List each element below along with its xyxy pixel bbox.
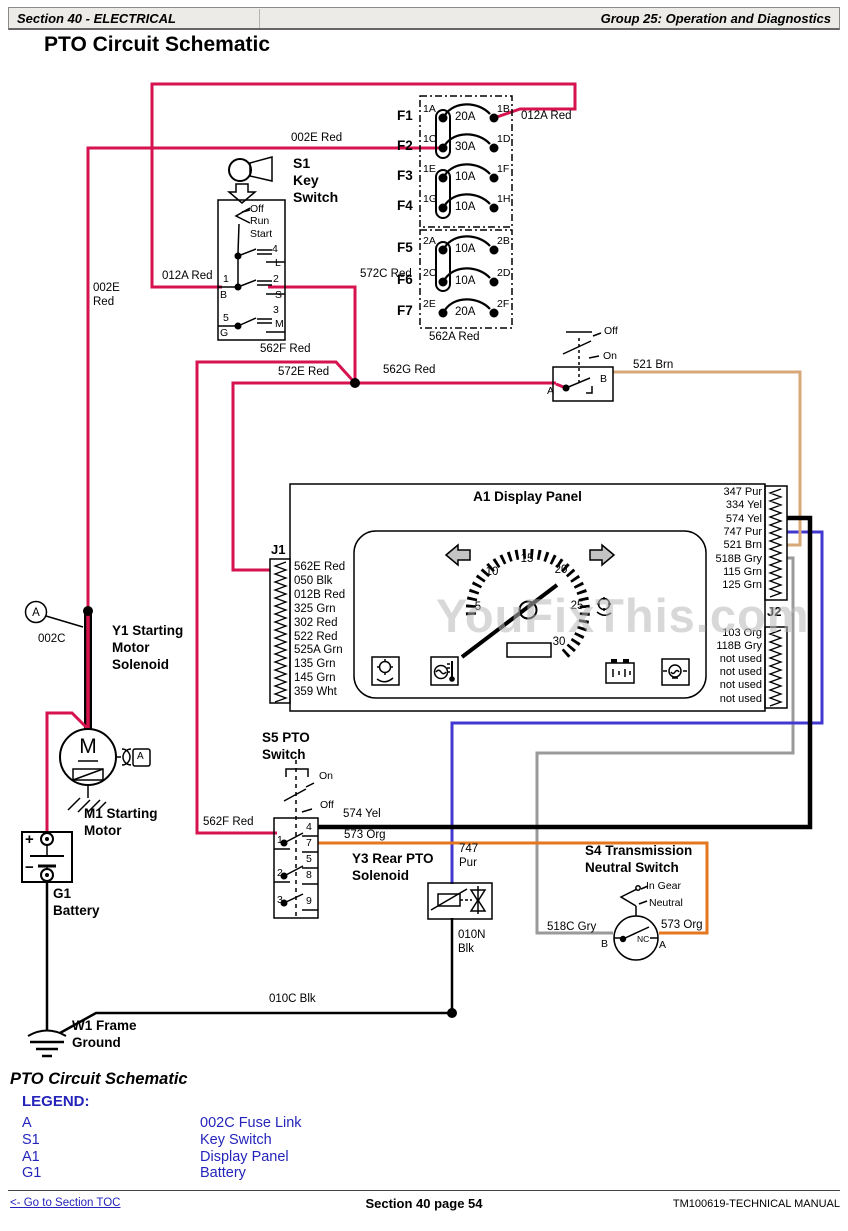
footer-rule: [8, 1190, 840, 1191]
fuse-name: F3: [397, 169, 413, 184]
fuse-name: F2: [397, 139, 413, 154]
j2-pin-label: not used: [682, 693, 762, 705]
legend-key: G1: [22, 1165, 41, 1181]
pin-label: A: [659, 940, 666, 952]
panel-right-pin-label: 747 Pur: [682, 526, 762, 538]
fuse-rating: 20A: [455, 111, 475, 124]
wire-label: 002E: [93, 282, 120, 295]
pin-label: L: [275, 258, 281, 270]
connector-zigzag: [275, 562, 286, 702]
key-position: Off: [250, 204, 264, 216]
pin-label: A: [547, 386, 554, 398]
pin-label: S: [275, 290, 282, 302]
fuse-in-terminal: 1G: [423, 194, 437, 206]
j1-pin-label: 135 Grn: [294, 658, 336, 671]
legend-value: Battery: [200, 1165, 246, 1181]
component-name: Motor: [112, 641, 150, 656]
fuse-in-terminal: 1E: [423, 164, 436, 176]
frame-ground-symbol: [28, 1031, 66, 1057]
component-name: Y3 Rear PTO: [352, 852, 434, 867]
pin-label: 1: [223, 274, 229, 286]
fuse-rating: 20A: [455, 306, 475, 319]
j2-pin-label: not used: [682, 666, 762, 678]
j1-pin-label: 145 Grn: [294, 672, 336, 685]
j1-pin-label: 012B Red: [294, 589, 345, 602]
wire-label: Red: [93, 296, 114, 309]
s5-pin-label: 2: [277, 868, 283, 880]
hour-meter: [507, 643, 551, 657]
pin-label: 4: [272, 244, 278, 256]
fuse-out-terminal: 1F: [497, 164, 509, 176]
s5-pin-label: 7: [306, 838, 312, 850]
pin-label: B: [220, 290, 227, 302]
fuse-in-terminal: 1C: [423, 134, 436, 146]
fuse-name: F4: [397, 199, 413, 214]
starting-motor: [60, 729, 150, 812]
fuse-out-terminal: 2F: [497, 299, 509, 311]
key-position: Start: [250, 229, 272, 241]
s5-pin-label: 4: [306, 822, 312, 834]
watermark: YouFixThis.com: [436, 588, 810, 643]
wire-label: 010N: [458, 929, 486, 942]
fuse-name: F1: [397, 109, 413, 124]
component-id: S1: [293, 156, 310, 171]
gauge-number: 20: [555, 564, 568, 576]
switch-position: On: [603, 351, 617, 363]
rear-pto-solenoid: [428, 883, 492, 919]
left-turn-arrow-icon: [446, 545, 470, 565]
panel-right-pin-label: 115 Grn: [682, 566, 762, 578]
fuse-name: F5: [397, 241, 413, 256]
key-icon: [229, 157, 272, 181]
j2-pin-label: not used: [682, 653, 762, 665]
panel-right-pin-label: 574 Yel: [682, 513, 762, 525]
fuse-out-terminal: 1B: [497, 104, 510, 116]
fuse-in-terminal: 2A: [423, 236, 436, 248]
pto-indicator-icon: [372, 657, 399, 685]
battery-indicator-icon: [606, 659, 634, 683]
component-name: Solenoid: [112, 658, 169, 673]
component-name: Battery: [53, 904, 100, 919]
wire-battery-feed-red: [47, 713, 88, 834]
pin-label: NC: [637, 935, 649, 944]
fuse-rating: 10A: [455, 275, 475, 288]
gauge-number: 15: [521, 553, 534, 565]
pin-label: 5: [223, 313, 229, 325]
fuse-out-terminal: 1D: [497, 134, 510, 146]
fuse-name: F7: [397, 304, 413, 319]
s5-pin-label: 9: [306, 896, 312, 908]
footer-manual-id: TM100619-TECHNICAL MANUAL: [673, 1198, 840, 1210]
pin-label: M: [275, 319, 284, 331]
component-name: Key: [293, 173, 319, 188]
j1-pin-label: 359 Wht: [294, 686, 337, 699]
legend-key: S1: [22, 1132, 40, 1148]
switch-position: Off: [320, 800, 334, 812]
fuse-in-terminal: 2E: [423, 299, 436, 311]
legend-key: A1: [22, 1149, 40, 1165]
wire-label: Pur: [459, 857, 477, 870]
wire-label: 518C Gry: [547, 921, 596, 934]
wire-562g-red: [355, 383, 566, 388]
s5-pin-label: 1: [277, 835, 283, 847]
page-title: PTO Circuit Schematic: [44, 33, 270, 57]
switch-position: In Gear: [646, 881, 681, 893]
pin-label: B: [600, 374, 607, 386]
right-turn-arrow-icon: [590, 545, 614, 565]
panel-right-pin-label: 521 Brn: [682, 539, 762, 551]
component-name: S4 Transmission: [585, 844, 692, 859]
connector-zigzag: [770, 489, 781, 597]
fuse-out-terminal: 2D: [497, 268, 510, 280]
wire-label: 572E Red: [278, 366, 329, 379]
wire-label: 010C Blk: [269, 993, 316, 1006]
j1-pin-label: 562E Red: [294, 561, 345, 574]
fuse-rating: 10A: [455, 171, 475, 184]
fuse-rating: 10A: [455, 243, 475, 256]
component-name: Switch: [262, 748, 306, 763]
fuse-in-terminal: 2C: [423, 268, 436, 280]
j2-pin-label: not used: [682, 679, 762, 691]
component-name: Solenoid: [352, 869, 409, 884]
component-name: Motor: [84, 824, 122, 839]
fuse-rating: 10A: [455, 201, 475, 214]
component-name: W1 Frame: [72, 1019, 137, 1034]
pin-label: 3: [273, 305, 279, 317]
wire-572e-red: [233, 383, 355, 570]
component-name: M1 Starting: [84, 807, 158, 822]
j1-pin-label: 525A Grn: [294, 644, 343, 657]
fuse-in-terminal: 1A: [423, 104, 436, 116]
wire-label: 562G Red: [383, 364, 435, 377]
fuse-link-letter: A: [32, 607, 40, 619]
wire-label: 562A Red: [429, 331, 480, 344]
key-position: Run: [250, 216, 269, 228]
j1-pin-label: 302 Red: [294, 617, 337, 630]
s5-pin-label: 5: [306, 854, 312, 866]
legend-value: 002C Fuse Link: [200, 1115, 302, 1131]
component-name: S5 PTO: [262, 731, 310, 746]
component-name: Y1 Starting: [112, 624, 183, 639]
battery-minus: −: [25, 860, 34, 877]
switch-position: On: [319, 771, 333, 783]
junction-dot: [447, 1008, 457, 1018]
j1-pin-label: 050 Blk: [294, 575, 332, 588]
wire-label: 012A Red: [162, 270, 213, 283]
wire-label: 002C: [38, 633, 66, 646]
pin-label: 2: [273, 274, 279, 286]
pin-label: B: [601, 939, 608, 951]
header-group: Group 25: Operation and Diagnostics: [601, 11, 831, 26]
light-switch: [553, 332, 613, 401]
fuse-rating: 30A: [455, 141, 475, 154]
fuse-out-terminal: 1H: [497, 194, 510, 206]
plug-label: A: [137, 751, 144, 762]
legend-heading: LEGEND:: [22, 1093, 90, 1110]
switch-position: Neutral: [649, 898, 683, 910]
j1-pin-label: 522 Red: [294, 631, 337, 644]
component-name: Neutral Switch: [585, 861, 679, 876]
wire-label: 562F Red: [260, 343, 311, 356]
wire-label: 002E Red: [291, 132, 342, 145]
connector-label: J1: [271, 543, 285, 557]
motor-letter: M: [79, 735, 97, 759]
panel-right-pin-label: 518B Gry: [682, 553, 762, 565]
legend-value: Display Panel: [200, 1149, 289, 1165]
wire-label: 574 Yel: [343, 808, 381, 821]
gauge-number: 10: [486, 566, 499, 578]
j1-pin-label: 325 Grn: [294, 603, 336, 616]
figure-caption: PTO Circuit Schematic: [10, 1070, 188, 1089]
component-name: Switch: [293, 190, 338, 205]
header-section: Section 40 - ELECTRICAL: [17, 11, 176, 26]
s5-pin-label: 3: [277, 895, 283, 907]
wire-label: 573 Org: [344, 829, 386, 842]
battery-plus: +: [25, 832, 34, 849]
fuse-out-terminal: 2B: [497, 236, 510, 248]
wire-label: 562F Red: [203, 816, 254, 829]
switch-position: Off: [604, 326, 618, 338]
wire-label: 747: [459, 843, 478, 856]
wire-label: 012A Red: [521, 110, 572, 123]
wire-label: Blk: [458, 943, 474, 956]
panel-right-pin-label: 334 Yel: [682, 499, 762, 511]
pin-label: G: [220, 328, 228, 340]
fuse-name: F6: [397, 273, 413, 288]
manual-page: Section 40 - ELECTRICAL Group 25: Operat…: [0, 0, 848, 1231]
component-name: Ground: [72, 1036, 121, 1051]
component-name: G1: [53, 887, 71, 902]
s5-pin-label: 8: [306, 870, 312, 882]
junction-dot: [350, 378, 360, 388]
wire-label: 521 Brn: [633, 359, 673, 372]
coolant-temp-icon: [431, 657, 458, 685]
legend-key: A: [22, 1115, 32, 1131]
header-divider: [259, 9, 260, 28]
page-header: Section 40 - ELECTRICAL Group 25: Operat…: [8, 7, 840, 30]
panel-right-pin-label: 347 Pur: [682, 486, 762, 498]
wire-label: 573 Org: [661, 919, 703, 932]
junction-dot: [83, 606, 93, 616]
legend-value: Key Switch: [200, 1132, 272, 1148]
